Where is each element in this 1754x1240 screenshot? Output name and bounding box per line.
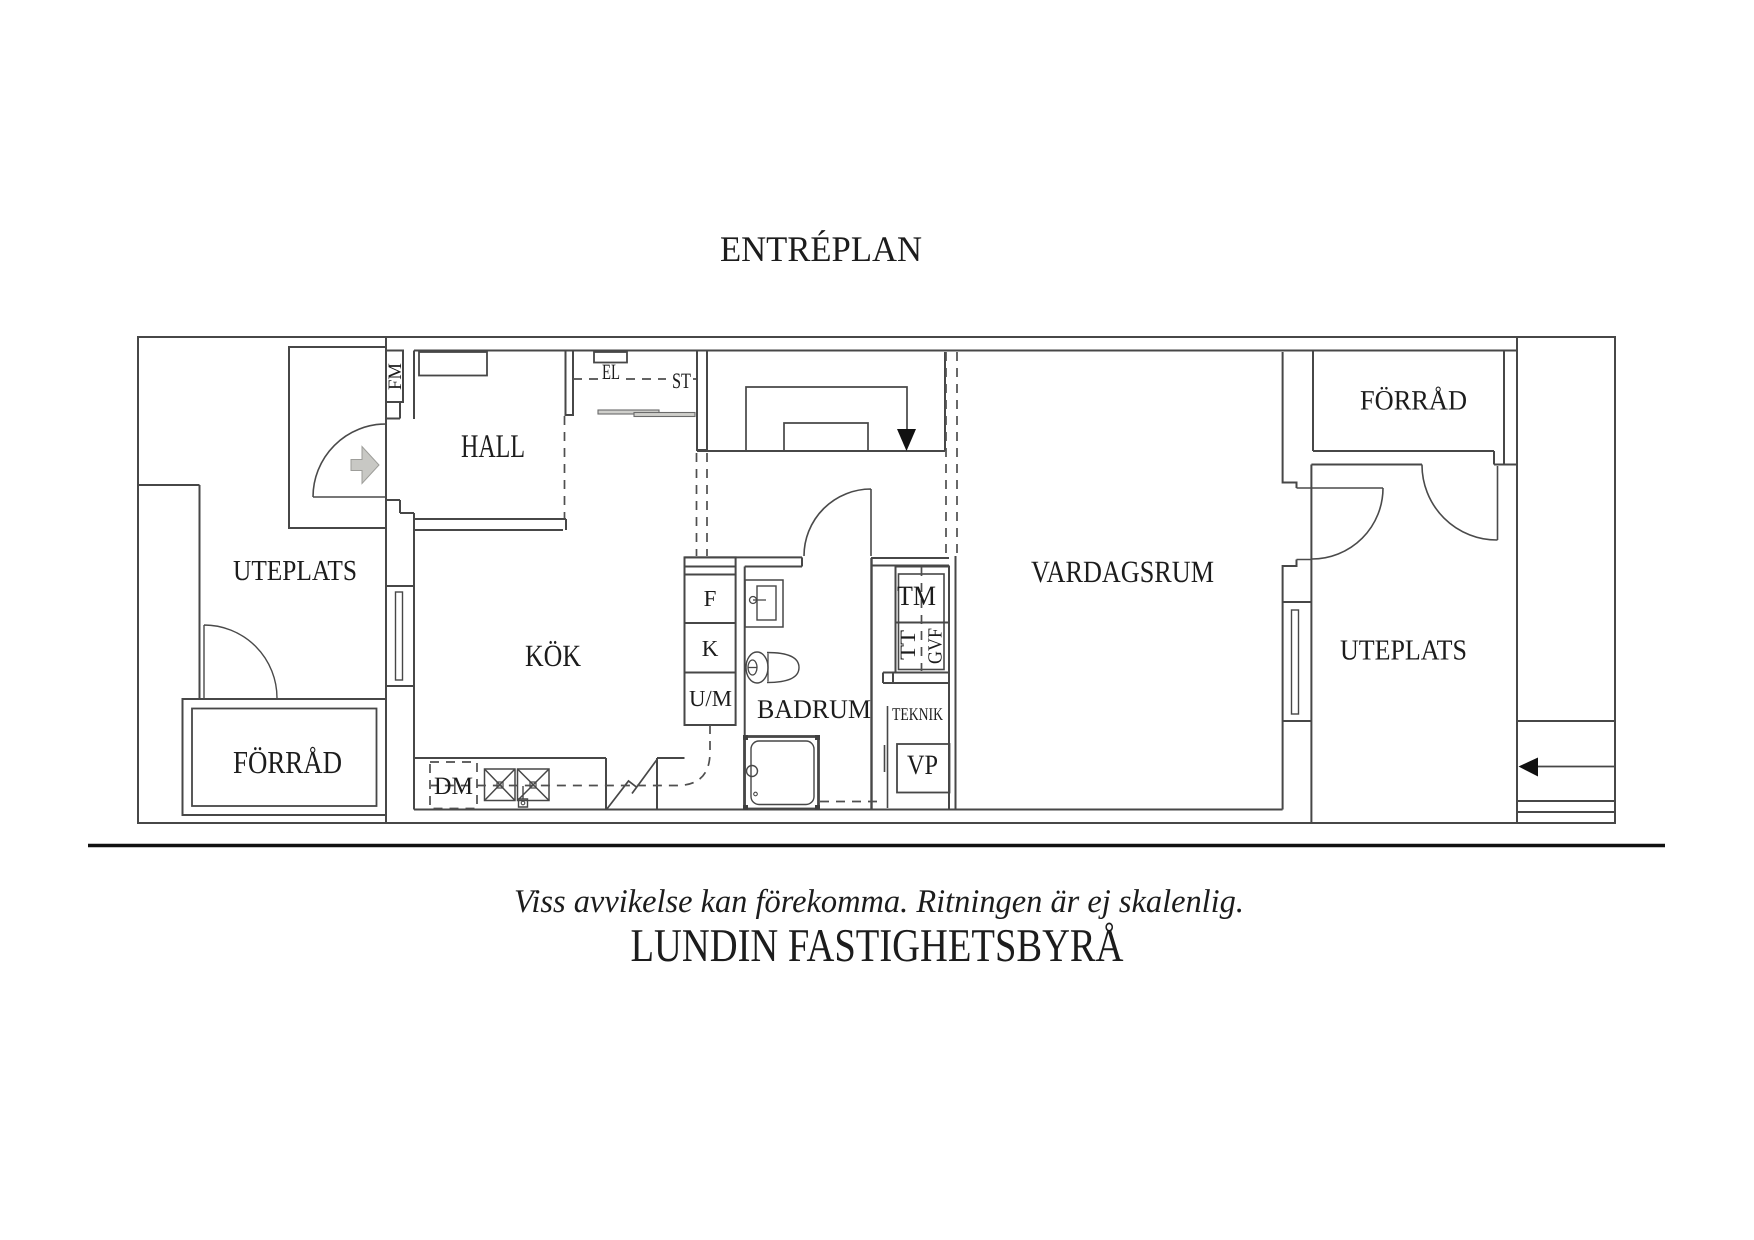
svg-text:FÖRRÅD: FÖRRÅD [1360,386,1467,417]
svg-text:LUNDIN FASTIGHETSBYRÅ: LUNDIN FASTIGHETSBYRÅ [631,920,1124,972]
svg-text:DM: DM [434,773,473,800]
svg-text:GVF: GVF [925,628,947,664]
svg-text:FM: FM [385,363,406,390]
svg-text:VARDAGSRUM: VARDAGSRUM [1031,554,1214,589]
svg-text:U/M: U/M [689,686,732,711]
svg-text:EL: EL [602,359,620,384]
svg-text:TT: TT [895,629,920,660]
svg-text:UTEPLATS: UTEPLATS [1340,635,1467,667]
svg-text:VP: VP [907,750,938,781]
svg-text:KÖK: KÖK [525,638,582,673]
svg-text:ENTRÉPLAN: ENTRÉPLAN [720,229,922,269]
svg-text:K: K [702,636,719,661]
svg-text:FÖRRÅD: FÖRRÅD [233,744,342,780]
svg-text:TM: TM [897,581,936,612]
svg-text:ST: ST [672,368,691,393]
svg-text:Viss avvikelse kan förekomma.: Viss avvikelse kan förekomma. Ritningen … [514,884,1244,920]
svg-text:TEKNIK: TEKNIK [892,704,943,724]
svg-text:F: F [704,586,717,611]
svg-text:UTEPLATS: UTEPLATS [233,555,357,587]
svg-text:HALL: HALL [461,429,525,465]
svg-text:BADRUM: BADRUM [757,694,871,724]
